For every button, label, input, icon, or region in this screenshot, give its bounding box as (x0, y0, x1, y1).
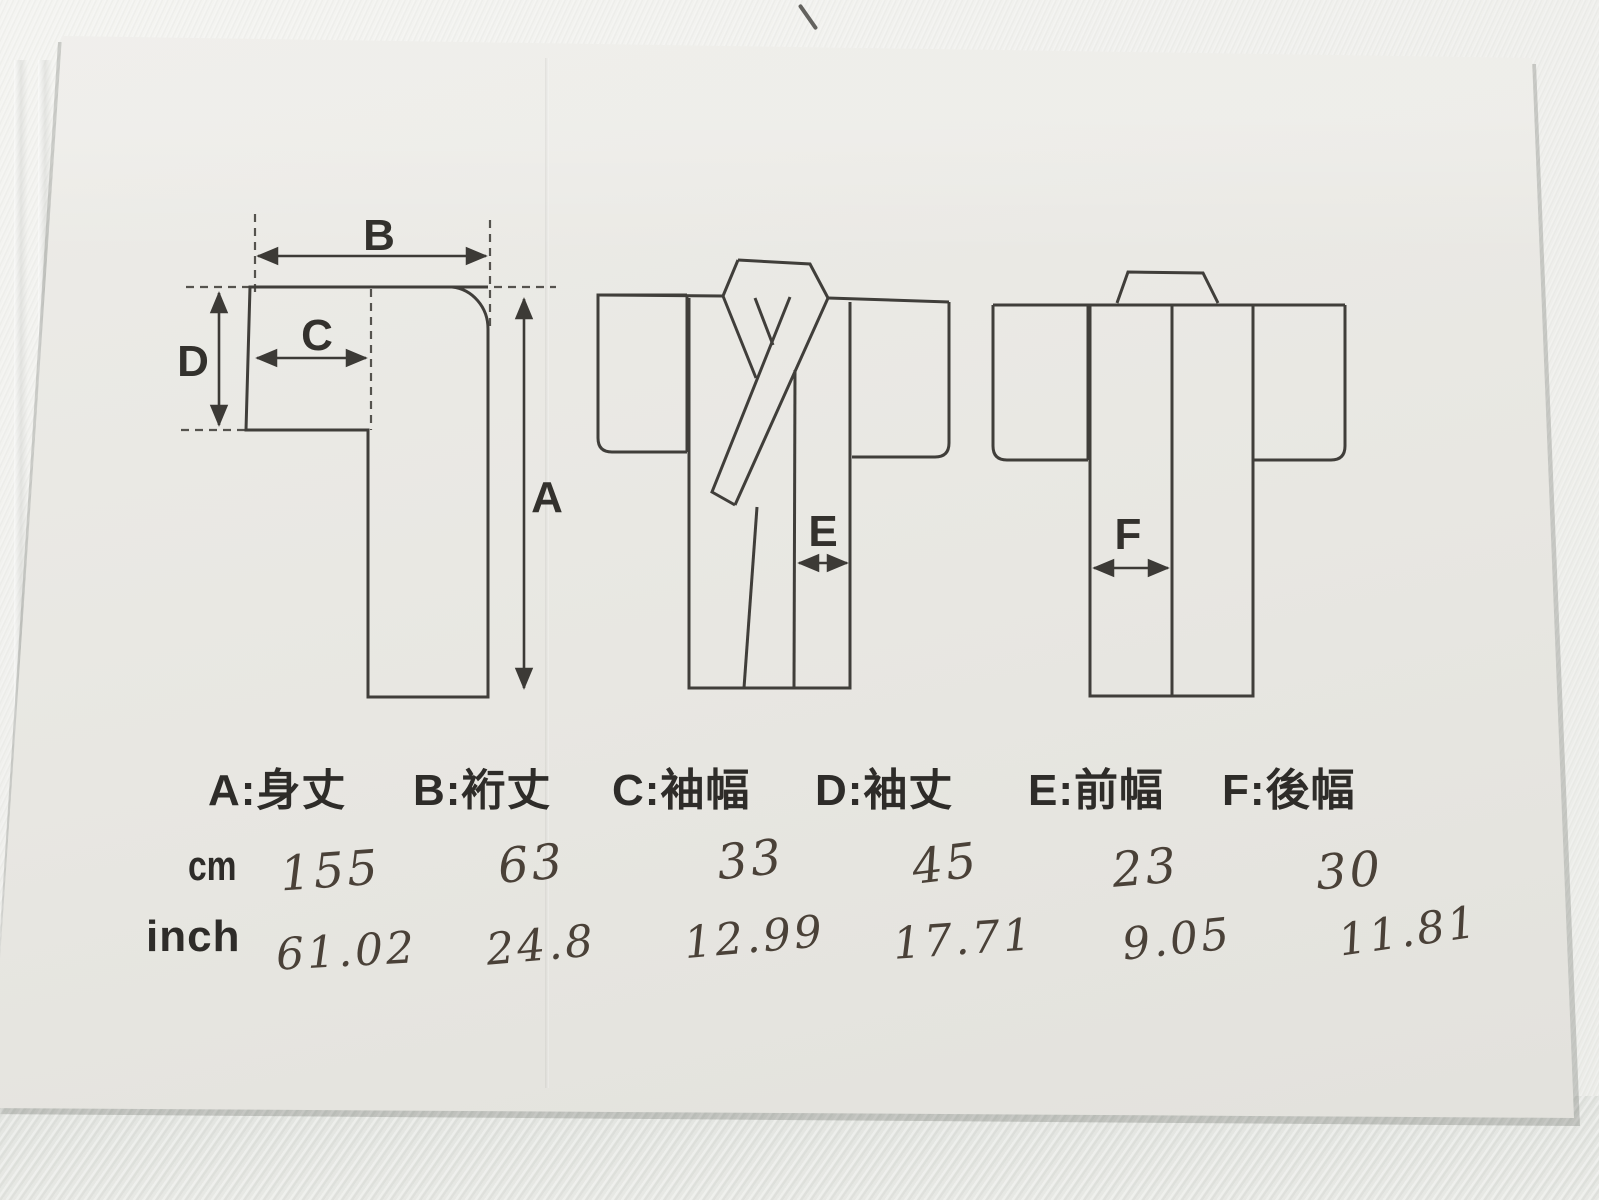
legend-item-a: A:身丈 (208, 754, 346, 818)
dimension-label-e: E (808, 507, 837, 556)
dimension-label-f: F (1115, 510, 1142, 559)
pattern-outline (246, 287, 488, 697)
collar-under-strip (723, 296, 756, 378)
photo-of-size-chart: B C D A (0, 0, 1599, 1200)
dimension-label-a: A (531, 473, 563, 522)
shoulder-line (828, 298, 949, 302)
left-sleeve (598, 295, 687, 452)
front-panel-line (794, 370, 795, 688)
left-sleeve (993, 305, 1088, 460)
cell-cm-d: 45 (909, 832, 982, 896)
cell-inch-d: 17.71 (891, 909, 1035, 970)
back-collar (1117, 272, 1218, 303)
paper-sheet: B C D A (0, 0, 1599, 1200)
kimono-measurement-diagram: B C D A (0, 0, 1599, 1200)
okumi-line (744, 507, 757, 688)
schematic-half-pattern: B C D A (177, 211, 563, 697)
collar-band-left (723, 260, 738, 296)
neckline-curve (452, 287, 488, 329)
row-label-inch: inch (146, 912, 240, 962)
cell-cm-b: 63 (496, 833, 568, 895)
cell-inch-b: 24.8 (484, 915, 598, 975)
right-sleeve (1253, 305, 1345, 460)
cell-inch-a: 61.02 (275, 922, 418, 980)
kimono-back-view: F (993, 272, 1345, 696)
legend-item-f: F:後幅 (1222, 754, 1356, 818)
cell-cm-a: 155 (278, 840, 382, 903)
legend-item-d: D:袖丈 (815, 754, 953, 818)
collar-band (738, 260, 828, 298)
cell-cm-f: 30 (1314, 841, 1385, 902)
collar-inner-left (755, 298, 773, 345)
collar-overlap-strip (712, 297, 790, 505)
cell-cm-c: 33 (714, 829, 787, 892)
legend-item-b: B:裄丈 (413, 754, 551, 818)
dimension-label-d: D (177, 337, 209, 386)
kimono-front-view: E (598, 260, 949, 688)
shoulder-line (598, 295, 723, 296)
right-sleeve (852, 302, 949, 457)
legend-item-e: E:前幅 (1028, 754, 1164, 818)
row-label-cm: cm (188, 842, 237, 890)
dimension-label-b: B (363, 211, 395, 260)
legend-item-c: C:袖幅 (612, 754, 750, 818)
dimension-label-c: C (301, 311, 333, 360)
cell-cm-e: 23 (1110, 837, 1182, 899)
